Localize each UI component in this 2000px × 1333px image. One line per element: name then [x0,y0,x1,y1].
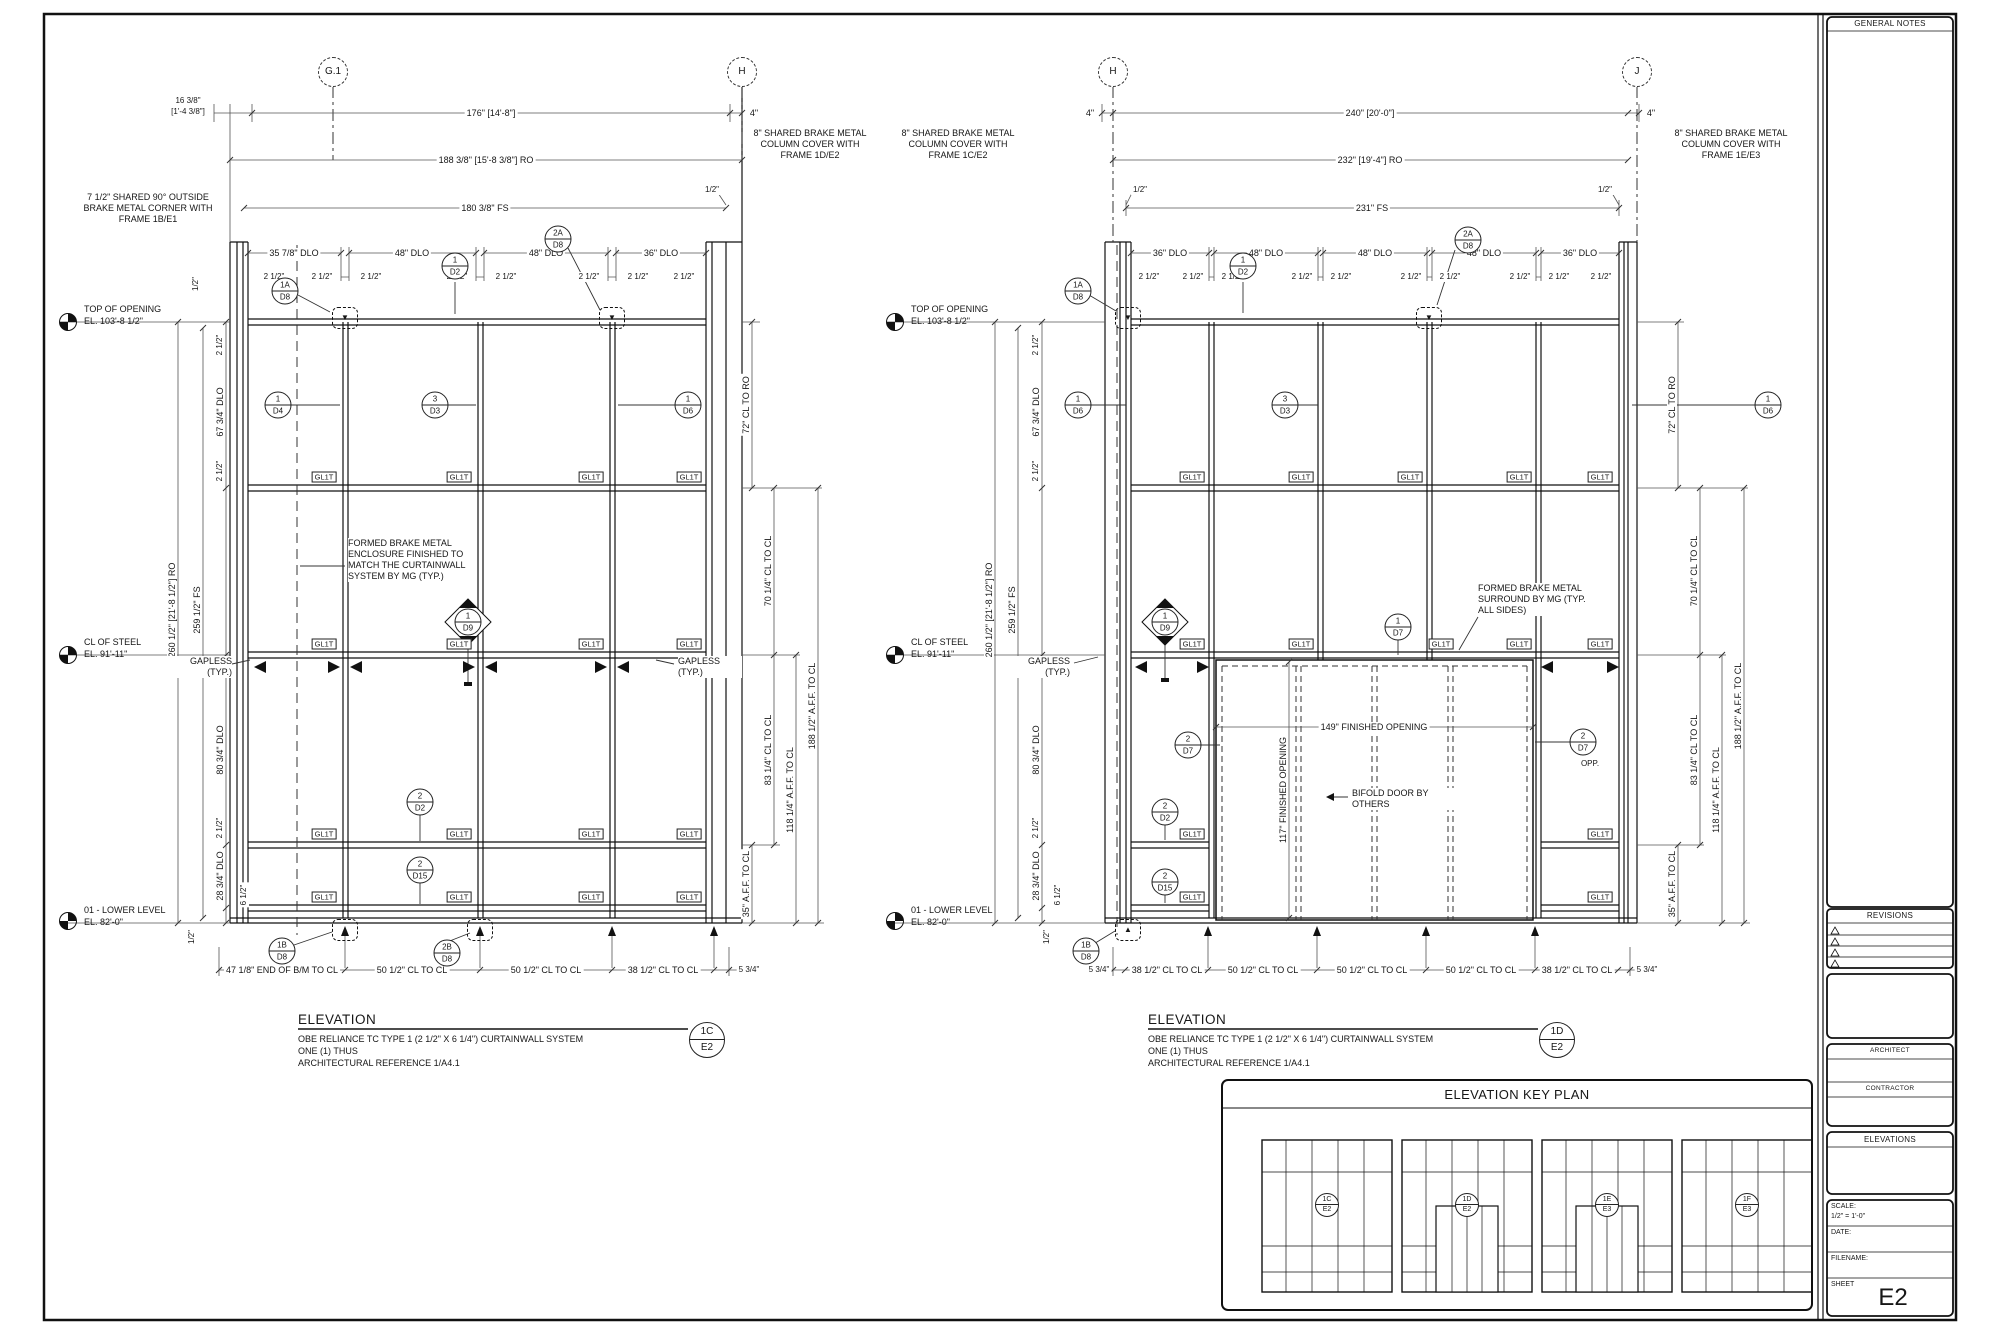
callout-sheet: D8 [270,952,295,964]
callout-num: 2 [1176,733,1201,746]
view-subtitle: ARCHITECTURAL REFERENCE 1/A4.1 [298,1058,460,1068]
callout-sheet: D7 [1571,743,1596,755]
glass-tag: GL1T [1289,472,1314,483]
dim-label: 83 1/4" CL TO CL [1689,713,1699,788]
key-plan-callout: 1DE2 [1455,1193,1479,1217]
callout-num: 1 [676,393,701,406]
glass-tag: GL1T [1588,829,1613,840]
dim-label: 6 1/2" [1053,883,1063,908]
callout-sheet: D4 [266,406,291,418]
titleblock-linework [1827,17,1953,1316]
glass-tag: GL1T [677,639,702,650]
level-name: 01 - LOWER LEVEL [911,905,993,917]
view-subtitle: OBE RELIANCE TC TYPE 1 (2 1/2" X 6 1/4")… [1148,1034,1433,1044]
level-name: TOP OF OPENING [911,304,988,316]
callout-sheet: D3 [423,406,448,418]
level-marker: TOP OF OPENINGEL. 103'-8 1/2" [911,304,988,327]
glass-tag: GL1T [579,472,604,483]
detail-callout: 1D2 [442,253,469,280]
callout-num: 1C [690,1023,724,1040]
key-plan-callout: 1CE2 [1315,1193,1339,1217]
callout-num: 1C [1316,1194,1338,1205]
level-elevation: EL. 103'-8 1/2" [911,316,988,328]
dim-label: 48" DLO [1356,248,1394,258]
callout-sheet: D3 [1273,406,1298,418]
callout-sheet: E2 [1456,1205,1478,1216]
dim-label: 180 3/8" FS [459,203,510,213]
dim-label: 2 1/2" [1547,272,1572,282]
dim-label: 83 1/4" CL TO CL [763,713,773,788]
dim-label: 4" [1084,108,1096,118]
gapless-note: GAPLESS(TYP.) [168,656,232,678]
gapless-line1: GAPLESS [168,656,232,667]
callout-num: 2A [1456,228,1481,241]
glass-tag: GL1T [1180,472,1205,483]
detail-callout: 2D15 [407,857,434,884]
scale-label: SCALE: [1831,1203,1856,1210]
contractor-header: CONTRACTOR [1866,1085,1915,1092]
detail-callout: 2D2 [1152,799,1179,826]
column-cover-note: 8" SHARED BRAKE METAL COLUMN COVER WITH … [1673,128,1789,161]
detail-callout: 3D3 [1272,392,1299,419]
dim-label: 67 3/4" DLO [1031,385,1041,438]
filename-label: FILENAME: [1831,1255,1868,1262]
revisions-header: REVISIONS [1867,911,1913,920]
callout-sheet: D8 [546,240,571,252]
callout-num: 1B [270,939,295,952]
callout-sheet: D7 [1386,628,1411,640]
dim-label: 2 1/2" [626,272,651,282]
glass-tag: GL1T [1588,892,1613,903]
level-elevation: EL. 82'-0" [84,917,166,929]
dim-label: 2 1/2" [359,272,384,282]
dim-label: 2 1/2" [1137,272,1162,282]
dim-label: 5 3/4" [1635,965,1660,975]
gapless-line2: (TYP.) [1006,667,1070,678]
callout-num: 1 [1066,393,1091,406]
dim-label: 28 3/4" DLO [1031,849,1041,902]
view-subtitle: ONE (1) THUS [298,1046,358,1056]
level-elevation: EL. 91'-11" [911,649,968,661]
glass-tag: GL1T [312,472,337,483]
key-plan-title: ELEVATION KEY PLAN [1444,1087,1589,1102]
dim-label: 2 1/2" [494,272,519,282]
dim-label: 48" DLO [393,248,431,258]
callout-num: 2A [546,227,571,240]
glass-tag: GL1T [312,829,337,840]
callout-sheet: E2 [690,1040,724,1056]
architect-header: ARCHITECT [1870,1047,1910,1054]
callout-num: 3 [1273,393,1298,406]
dim-label: 2 1/2" [577,272,602,282]
dim-label: 4" [748,108,760,118]
right-leaders [1074,250,1755,945]
grid-bubble: H [727,57,757,87]
level-marker: CL OF STEELEL. 91'-11" [84,637,141,660]
dim-label: 72" CL TO RO [1667,374,1677,436]
callout-num: 1 [1231,254,1256,267]
callout-num: 3 [423,393,448,406]
level-name: 01 - LOWER LEVEL [84,905,166,917]
dim-label: 2 1/2" [215,459,225,484]
sheet-linework [0,0,2000,1333]
dim-label: 260 1/2" [21'-8 1/2"] RO [984,561,994,660]
glass-tag: GL1T [677,829,702,840]
column-cover-note: 8" SHARED BRAKE METAL COLUMN COVER WITH … [900,128,1016,161]
view-subtitle: ARCHITECTURAL REFERENCE 1/A4.1 [1148,1058,1310,1068]
dim-label: 188 1/2" A.F.F. TO CL [807,661,817,751]
anchor-box: ▼ [332,307,358,329]
dim-label: 176" [14'-8"] [465,108,518,118]
gapless-note: GAPLESS(TYP.) [1006,656,1070,678]
dim-label: 188 3/8" [15'-8 3/8"] RO [437,155,536,165]
callout-sheet: D6 [676,406,701,418]
callout-sheet: D9 [1153,623,1178,635]
sheet-number: E2 [1878,1284,1907,1312]
glass-tag: GL1T [677,472,702,483]
callout-sheet: D8 [435,954,460,966]
dim-label: 35" A.F.F. TO CL [741,849,751,919]
glass-tag: GL1T [1180,892,1205,903]
dim-label: 38 1/2" CL TO CL [1540,965,1615,975]
dim-label: 260 1/2" [21'-8 1/2"] RO [167,561,177,660]
anchor-box: ▲ [332,919,358,941]
gapless-line2: (TYP.) [678,667,742,678]
dim-label: 6 1/2" [239,883,249,908]
callout-num: 2 [408,790,433,803]
dim-label: 36" DLO [1561,248,1599,258]
detail-callout: 2D15 [1152,869,1179,896]
callout-sheet: D2 [408,803,433,815]
detail-callout: 1BD8 [269,938,296,965]
view-subtitle: ONE (1) THUS [1148,1046,1208,1056]
scale-value: 1/2" = 1'-0" [1831,1213,1865,1220]
detail-callout: 1D7 [1385,614,1412,641]
date-label: DATE: [1831,1229,1851,1236]
gapless-note: GAPLESS(TYP.) [678,656,742,678]
dim-label: 188 1/2" A.F.F. TO CL [1733,661,1743,751]
detail-callout: 2D2 [407,789,434,816]
dim-label: 2 1/2" [1181,272,1206,282]
callout-num: 1 [266,393,291,406]
callout-num: 1E [1596,1194,1618,1205]
drawing-sheet: G.1 H H J 16 3/8" [1'-4 3/8"] 176" [14'-… [0,0,2000,1333]
callout-num: 1F [1736,1194,1758,1205]
surround-note: FORMED BRAKE METAL SURROUND BY MG (TYP. … [1478,583,1600,616]
detail-callout-diamond: 1D9 [455,609,482,636]
dim-label: 70 1/4" CL TO CL [1689,534,1699,609]
view-callout: 1DE2 [1539,1022,1575,1058]
callout-sheet: D6 [1756,406,1781,418]
detail-callout: 2AD8 [545,226,572,253]
dim-label: 117" FINISHED OPENING [1278,735,1288,845]
dim-label: 259 1/2" FS [192,584,202,635]
dim-label: 2 1/2" [1508,272,1533,282]
callout-num: 2 [408,858,433,871]
dim-label: 2 1/2" [1589,272,1614,282]
glass-tag: GL1T [312,639,337,650]
callout-sheet: D9 [456,623,481,635]
left-hidden-lines [297,86,742,935]
callout-num: 2 [1153,800,1178,813]
dim-label: 118 1/4" A.F.F. TO CL [1711,745,1721,835]
level-name: CL OF STEEL [911,637,968,649]
callout-sheet: D2 [1231,267,1256,279]
dim-label: 2 1/2" [1031,333,1041,358]
left-leaders [232,248,675,946]
level-name: CL OF STEEL [84,637,141,649]
dim-label: 1/2" [703,185,721,195]
level-marker: CL OF STEELEL. 91'-11" [911,637,968,660]
dim-label: 240" [20'-0"] [1344,108,1397,118]
dim-label: 2 1/2" [1438,272,1463,282]
glass-tag: GL1T [1588,639,1613,650]
dim-label: 5 3/4" [1087,965,1112,975]
view-subtitle: OBE RELIANCE TC TYPE 1 (2 1/2" X 6 1/4")… [298,1034,583,1044]
anchor-box: ▲ [1115,919,1141,941]
level-name: TOP OF OPENING [84,304,161,316]
dim-label: 2 1/2" [1329,272,1354,282]
enclosure-note: FORMED BRAKE METAL ENCLOSURE FINISHED TO… [348,538,476,582]
dim-label: 50 1/2" CL TO CL [1335,965,1410,975]
dim-label: 118 1/4" A.F.F. TO CL [785,745,795,835]
level-elevation: EL. 82'-0" [911,917,993,929]
detail-callout: 2BD8 [434,940,461,967]
dim-label: 259 1/2" FS [1007,584,1017,635]
dim-label: 1/2" [1131,185,1149,195]
left-dim-ticks [175,110,821,973]
callout-num: 1 [1756,393,1781,406]
callout-sheet: D6 [1066,406,1091,418]
opp-label: OPP. [1579,759,1601,769]
detail-callout: 1D4 [265,392,292,419]
gapless-line1: GAPLESS [1006,656,1070,667]
glass-tag: GL1T [447,829,472,840]
dim-label: 50 1/2" CL TO CL [1444,965,1519,975]
anchor-box: ▼ [1416,307,1442,329]
glass-tag: GL1T [579,639,604,650]
glass-tag: GL1T [1588,472,1613,483]
glass-tag: GL1T [312,892,337,903]
grid-bubble: G.1 [318,57,348,87]
callout-num: 1B [1074,939,1099,952]
dim-label: 2 1/2" [1290,272,1315,282]
general-notes-header: GENERAL NOTES [1854,19,1926,28]
glass-tag: GL1T [447,892,472,903]
dim-label: 232" [19'-4"] RO [1336,155,1405,165]
callout-num: 2B [435,941,460,954]
level-elevation: EL. 91'-11" [84,649,141,661]
glass-tag: GL1T [1398,472,1423,483]
gapless-line1: GAPLESS [678,656,742,667]
callout-num: 1 [456,610,481,623]
detail-callout: 1AD8 [1065,278,1092,305]
callout-sheet: D8 [1074,952,1099,964]
callout-sheet: E3 [1596,1205,1618,1216]
detail-callout-diamond: 1D9 [1152,609,1179,636]
view-callout: 1CE2 [689,1022,725,1058]
key-plan-callout: 1EE3 [1595,1193,1619,1217]
glass-tag: GL1T [447,639,472,650]
anchor-box: ▼ [599,307,625,329]
callout-sheet: E3 [1736,1205,1758,1216]
glass-tag: GL1T [1429,639,1454,650]
dim-label: 80 3/4" DLO [215,723,225,776]
detail-callout: 2AD8 [1455,227,1482,254]
dim-label: 28 3/4" DLO [215,849,225,902]
key-plan-callout: 1FE3 [1735,1193,1759,1217]
callout-sheet: D2 [1153,813,1178,825]
view-title: ELEVATION [1148,1012,1226,1027]
level-elevation: EL. 103'-8 1/2" [84,316,161,328]
dim-label: 72" CL TO RO [741,374,751,436]
sheet-label: SHEET [1831,1281,1854,1288]
dim-label: 1/2" [187,928,197,946]
detail-callout: 1AD8 [272,278,299,305]
column-cover-note: 8" SHARED BRAKE METAL COLUMN COVER WITH … [752,128,868,161]
dim-label: 5 3/4" [737,965,762,975]
callout-sheet: D15 [408,871,433,883]
dim-label: 2 1/2" [672,272,697,282]
anchor-box: ▲ [467,919,493,941]
glass-tag: GL1T [1180,829,1205,840]
detail-callout: 2D7 [1570,729,1597,756]
dim-label: 2 1/2" [215,333,225,358]
callout-num: 2 [1571,730,1596,743]
callout-sheet: D8 [1066,292,1091,304]
key-plan-linework [1222,1080,1812,1310]
dim-label: 36" DLO [1151,248,1189,258]
glass-tag: GL1T [579,829,604,840]
dim-label: 50 1/2" CL TO CL [1226,965,1301,975]
dim-label: 16 3/8" [173,96,202,106]
dim-label: 2 1/2" [1399,272,1424,282]
level-marker: TOP OF OPENINGEL. 103'-8 1/2" [84,304,161,327]
dim-label: 38 1/2" CL TO CL [626,965,701,975]
glass-tag: GL1T [579,892,604,903]
glass-tag: GL1T [1289,639,1314,650]
callout-num: 1A [273,279,298,292]
callout-num: 1A [1066,279,1091,292]
dim-label: 50 1/2" CL TO CL [509,965,584,975]
dim-label: 149" FINISHED OPENING [1319,722,1430,732]
dim-label: 2 1/2" [1031,816,1041,841]
glass-tag: GL1T [1507,472,1532,483]
callout-num: 1 [443,254,468,267]
callout-sheet: D8 [273,292,298,304]
callout-sheet: D7 [1176,746,1201,758]
detail-callout: 1D6 [675,392,702,419]
dim-label: 1/2" [1042,928,1052,946]
detail-callout: 3D3 [422,392,449,419]
callout-sheet: D15 [1153,883,1178,895]
dim-label: 2 1/2" [310,272,335,282]
glass-tag: GL1T [677,892,702,903]
callout-sheet: D8 [1456,241,1481,253]
detail-callout: 1D6 [1755,392,1782,419]
callout-num: 1 [1153,610,1178,623]
bifold-note: BIFOLD DOOR BY OTHERS [1352,788,1460,810]
dim-label: 35 7/8" DLO [267,248,320,258]
elevations-header: ELEVATIONS [1864,1135,1916,1144]
view-title: ELEVATION [298,1012,376,1027]
callout-sheet: E2 [1540,1040,1574,1056]
dim-label: 1/2" [191,275,201,293]
detail-callout: 1BD8 [1073,938,1100,965]
callout-num: 1D [1540,1023,1574,1040]
callout-num: 1 [1386,615,1411,628]
level-marker: 01 - LOWER LEVELEL. 82'-0" [911,905,993,928]
dim-label: 231" FS [1354,203,1390,213]
glass-tag: GL1T [1180,639,1205,650]
dim-label: 38 1/2" CL TO CL [1130,965,1205,975]
dim-label: 50 1/2" CL TO CL [375,965,450,975]
level-marker: 01 - LOWER LEVELEL. 82'-0" [84,905,166,928]
callout-num: 2 [1153,870,1178,883]
glass-tag: GL1T [447,472,472,483]
detail-callout: 2D7 [1175,732,1202,759]
glass-tag: GL1T [1507,639,1532,650]
detail-callout: 1D6 [1065,392,1092,419]
detail-callout: 1D2 [1230,253,1257,280]
dim-label: [1'-4 3/8"] [169,107,207,117]
dim-label: 2 1/2" [1031,459,1041,484]
dim-label: 1/2" [1596,185,1614,195]
grid-bubble: H [1098,57,1128,87]
dim-label: 70 1/4" CL TO CL [763,534,773,609]
dim-label: 4" [1645,108,1657,118]
callout-sheet: E2 [1316,1205,1338,1216]
gapless-line2: (TYP.) [168,667,232,678]
callout-num: 1D [1456,1194,1478,1205]
grid-bubble: J [1622,57,1652,87]
callout-sheet: D2 [443,267,468,279]
dim-label: 80 3/4" DLO [1031,723,1041,776]
dim-label: 2 1/2" [215,816,225,841]
corner-note: 7 1/2" SHARED 90° OUTSIDE BRAKE METAL CO… [72,192,224,225]
dim-label: 35" A.F.F. TO CL [1667,849,1677,919]
dim-label: 36" DLO [642,248,680,258]
dim-label: 47 1/8" END OF B/M TO CL [224,965,340,975]
dim-label: 67 3/4" DLO [215,385,225,438]
anchor-box: ▼ [1115,307,1141,329]
